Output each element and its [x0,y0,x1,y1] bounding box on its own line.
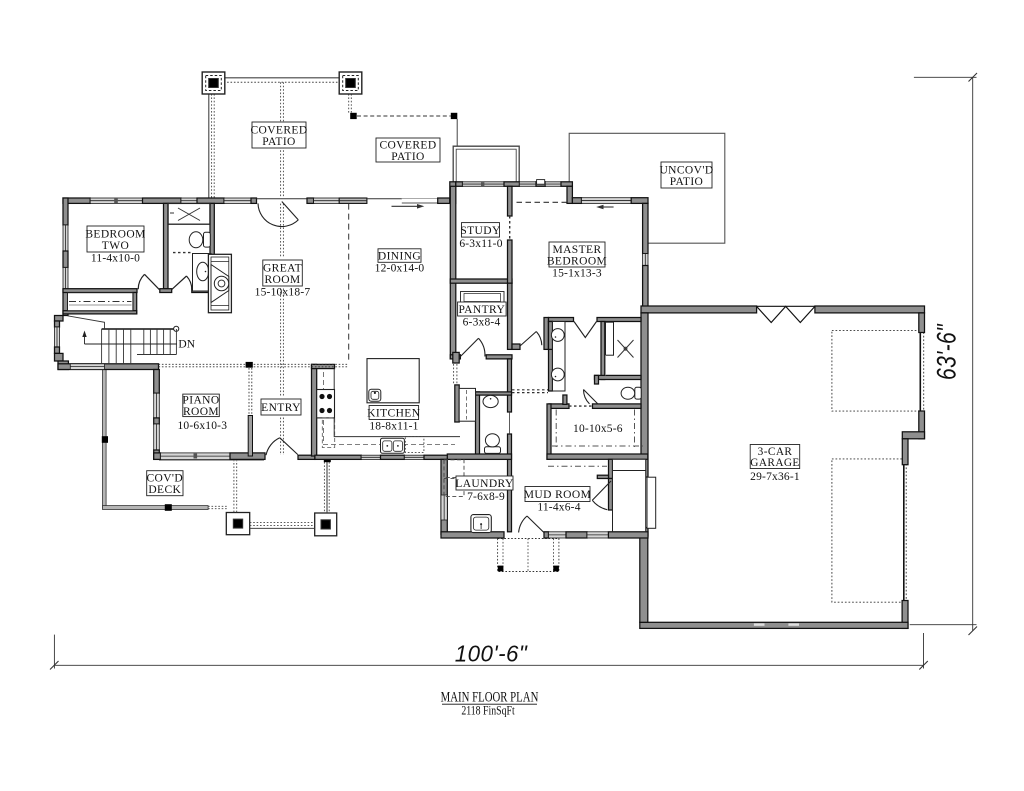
svg-text:PANTRY: PANTRY [458,304,505,316]
svg-text:KITCHEN: KITCHEN [367,408,421,420]
svg-text:DN: DN [178,339,195,351]
svg-text:10-6x10-3: 10-6x10-3 [177,420,227,432]
svg-text:MUD ROOM: MUD ROOM [524,489,591,501]
svg-text:DINING: DINING [378,251,421,263]
svg-text:PATIO: PATIO [670,176,704,188]
svg-text:7-6x8-9: 7-6x8-9 [467,491,505,503]
svg-text:GARAGE: GARAGE [750,457,799,469]
svg-text:DECK: DECK [148,484,181,496]
svg-text:PATIO: PATIO [391,151,425,163]
svg-text:GREAT: GREAT [263,262,302,274]
svg-text:11-4x6-4: 11-4x6-4 [537,502,580,514]
svg-text:ROOM: ROOM [183,406,219,418]
svg-text:COVERED: COVERED [250,124,307,136]
svg-text:63'-6": 63'-6" [932,323,962,380]
svg-text:ROOM: ROOM [264,274,300,286]
svg-text:3-CAR: 3-CAR [758,446,793,458]
svg-text:BEDROOM: BEDROOM [547,255,607,267]
svg-text:COVERED: COVERED [379,139,436,151]
svg-text:COV'D: COV'D [146,473,183,485]
svg-text:6-3x8-4: 6-3x8-4 [463,317,501,329]
svg-text:11-4x10-0: 11-4x10-0 [91,253,140,265]
svg-text:18-8x11-1: 18-8x11-1 [369,421,418,433]
svg-text:15-10x18-7: 15-10x18-7 [255,287,311,299]
svg-text:STUDY: STUDY [460,225,501,237]
svg-text:2118 FinSqFt: 2118 FinSqFt [461,704,515,717]
svg-text:BEDROOM: BEDROOM [85,228,145,240]
svg-text:LAUNDRY: LAUNDRY [455,478,514,490]
svg-text:ENTRY: ENTRY [261,402,301,414]
svg-text:UNCOV'D: UNCOV'D [659,164,713,176]
svg-text:TWO: TWO [102,240,129,252]
svg-text:15-1x13-3: 15-1x13-3 [552,268,602,280]
svg-text:MAIN FLOOR PLAN: MAIN FLOOR PLAN [441,689,539,705]
svg-text:6-3x11-0: 6-3x11-0 [459,238,502,250]
svg-text:100'-6": 100'-6" [455,640,528,667]
svg-text:PIANO: PIANO [182,395,219,407]
svg-text:PATIO: PATIO [262,136,296,148]
svg-text:29-7x36-1: 29-7x36-1 [750,471,800,483]
svg-text:12-0x14-0: 12-0x14-0 [375,263,425,275]
svg-text:MASTER: MASTER [552,244,601,256]
svg-text:10-10x5-6: 10-10x5-6 [573,423,623,435]
